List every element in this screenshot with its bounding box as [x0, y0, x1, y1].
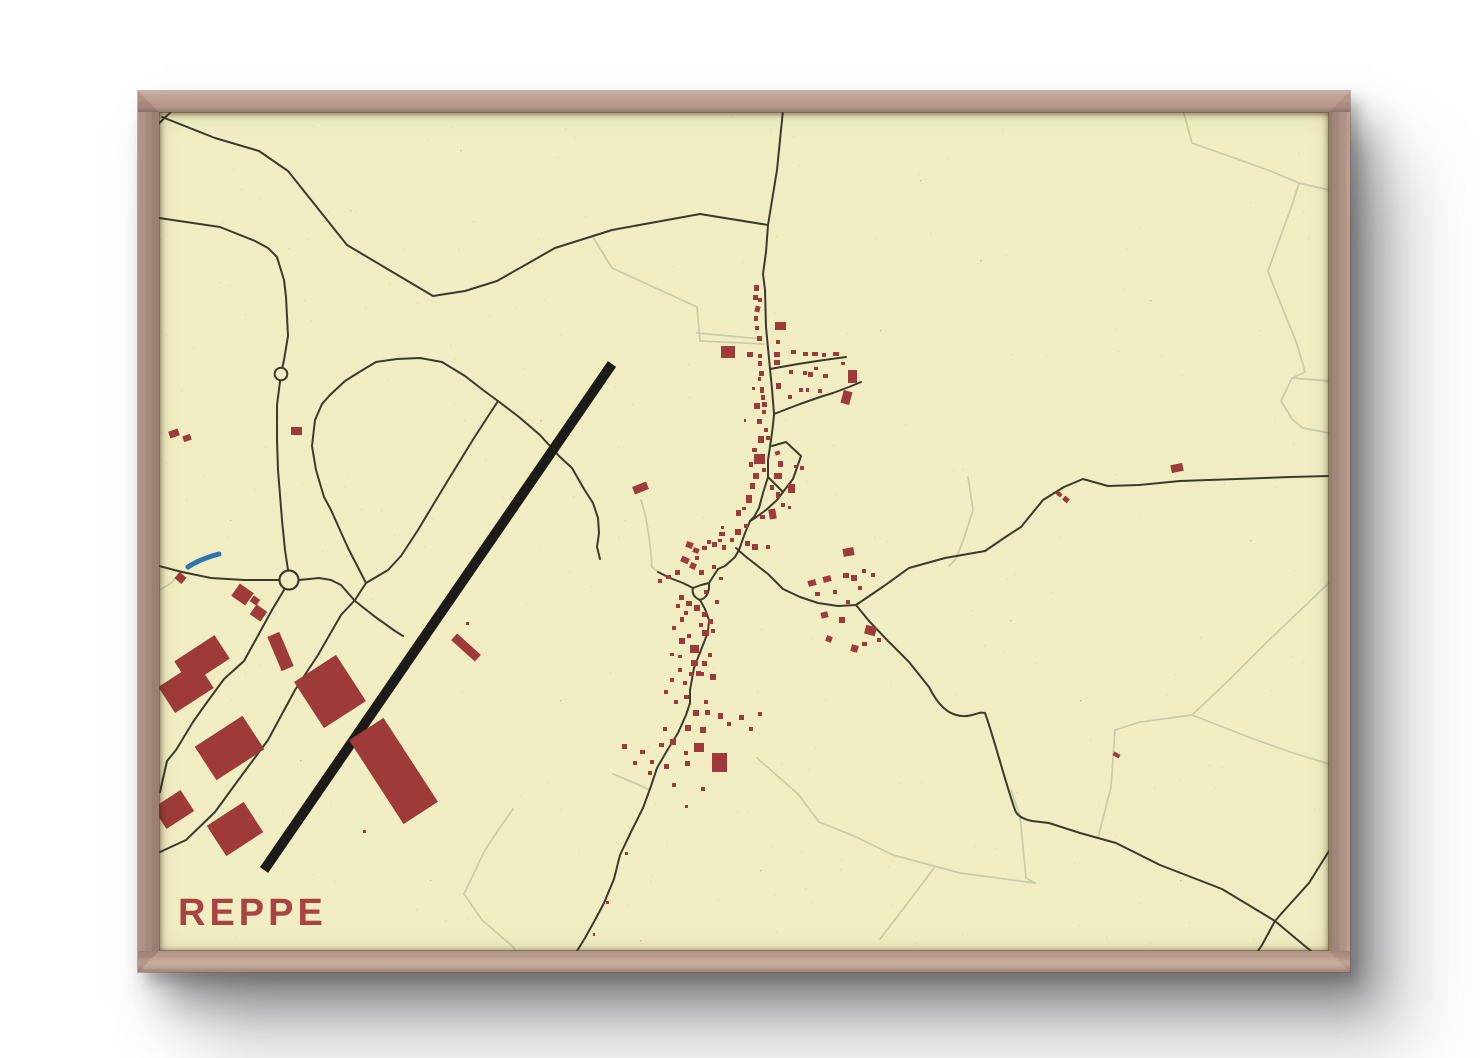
svg-text:REPPE: REPPE — [178, 892, 327, 934]
